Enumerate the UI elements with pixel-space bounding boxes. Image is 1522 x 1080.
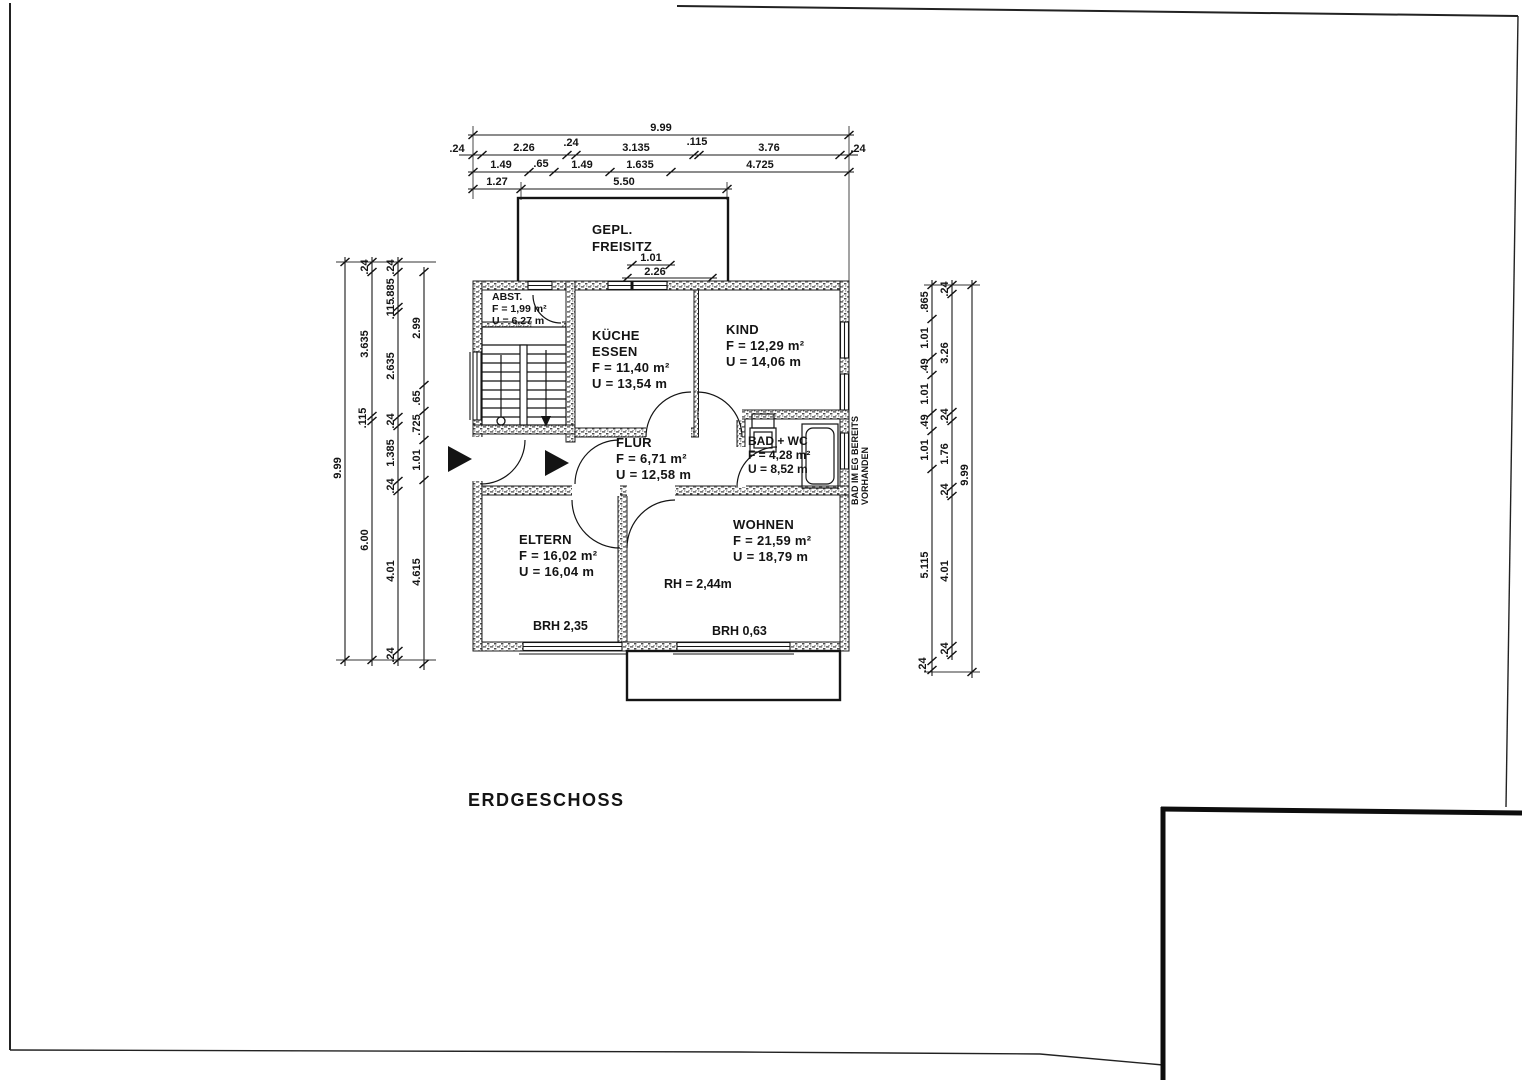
room-perimeter: U = 13,54 m (592, 376, 667, 391)
dim-label: .24 (917, 656, 929, 672)
dim-label: 1.01 (919, 439, 931, 460)
dim-label: 1.01 (411, 449, 423, 470)
dim-label: .24 (359, 258, 371, 274)
dim-label: 9.99 (332, 457, 344, 478)
right-dimension-chain: .865 1.01 .49 1.01 .49 1.01 5.115 .24 .2… (917, 280, 980, 678)
sill-height-wohnen: BRH 0,63 (712, 624, 767, 638)
dim-label: 4.615 (411, 558, 423, 586)
note-line1: BAD IM EG BEREITS (850, 416, 860, 505)
room-perimeter: U = 16,04 m (519, 564, 594, 579)
room-area: F = 6,71 m² (616, 451, 687, 466)
dim-label: .49 (919, 414, 931, 429)
dim-label: 1.01 (919, 383, 931, 404)
room-label-bad: BAD + WC F = 4,28 m² U = 8,52 m (748, 434, 810, 476)
dim-label: .24 (850, 143, 866, 155)
dim-label: 4.725 (746, 159, 774, 171)
dim-label: .24 (449, 143, 465, 155)
dim-label: 3.26 (939, 342, 951, 363)
dim-label: 2.26 (513, 142, 534, 154)
room-name: FLUR (616, 435, 652, 450)
vertical-note: BAD IM EG BEREITS VORHANDEN (850, 416, 870, 505)
dim-label: 1.01 (640, 252, 661, 264)
room-name: ESSEN (592, 344, 638, 359)
room-area: F = 1,99 m² (492, 303, 547, 315)
note-line2: VORHANDEN (860, 447, 870, 505)
dim-label: 5.50 (613, 176, 634, 188)
dim-label: .24 (385, 646, 397, 662)
dim-label: .24 (385, 477, 397, 493)
dim-label: 5.115 (919, 552, 931, 579)
dim-label: .24 (939, 280, 951, 296)
freisitz-label-line1: GEPL. (592, 222, 633, 237)
room-label-kueche: KÜCHE ESSEN F = 11,40 m² U = 13,54 m (592, 328, 670, 391)
entrance-arrow-icon (448, 446, 472, 472)
dim-label: .24 (939, 641, 951, 657)
scanned-floor-plan-page: 9.99 .24 2.26 .24 3.135 .115 3.76 .24 1.… (0, 0, 1522, 1080)
dim-label: .24 (385, 412, 397, 428)
dim-label: .24 (385, 258, 397, 274)
dimension-ticks-top (469, 131, 854, 193)
dim-label: 3.635 (359, 330, 371, 358)
drawing-title: ERDGESCHOSS (468, 790, 625, 810)
room-area: F = 4,28 m² (748, 448, 810, 462)
terrace-outline (627, 651, 840, 700)
room-perimeter: U = 18,79 m (733, 549, 808, 564)
room-label-kind: KIND F = 12,29 m² U = 14,06 m (726, 322, 805, 369)
dim-label: .24 (939, 482, 951, 498)
dim-label: 9.99 (650, 122, 671, 134)
dim-label: .24 (939, 407, 951, 423)
room-height-annotation: RH = 2,44m (664, 577, 732, 591)
dim-label: .115 (687, 136, 708, 148)
room-area: F = 11,40 m² (592, 360, 670, 375)
room-name: WOHNEN (733, 517, 794, 532)
room-perimeter: U = 12,58 m (616, 467, 691, 482)
dim-label: 2.635 (385, 352, 397, 380)
dim-label: .49 (919, 358, 931, 373)
room-name: BAD + WC (748, 434, 808, 448)
title-block (1161, 807, 1522, 1080)
dim-label: .65 (533, 158, 548, 170)
dim-label: .115 (357, 408, 369, 429)
dim-label: 3.76 (758, 142, 779, 154)
dim-label: 4.01 (939, 560, 951, 581)
room-label-flur: FLUR F = 6,71 m² U = 12,58 m (616, 435, 691, 482)
dim-label: .65 (411, 390, 423, 405)
room-name: KÜCHE (592, 328, 640, 343)
sill-height-eltern: BRH 2,35 (533, 619, 588, 633)
dim-label: 1.01 (919, 327, 931, 348)
entrance-arrows (448, 446, 569, 476)
freisitz-terrace: GEPL. FREISITZ 1.01 2.26 (518, 198, 728, 282)
room-name: ELTERN (519, 532, 572, 547)
room-area: F = 16,02 m² (519, 548, 598, 563)
dim-label: .725 (411, 414, 423, 435)
staircase-icon (482, 327, 566, 427)
room-perimeter: U = 8,52 m (748, 462, 808, 476)
dim-label: 2.26 (644, 266, 665, 278)
dim-label: 1.385 (385, 439, 397, 467)
room-label-eltern: ELTERN F = 16,02 m² U = 16,04 m (519, 532, 598, 579)
room-area: F = 21,59 m² (733, 533, 812, 548)
dim-label: .115 (385, 299, 397, 320)
left-dimension-chain: 9.99 .24 3.635 .115 6.00 .24 .885 .115 2… (332, 257, 436, 670)
room-label-abst: ABST. F = 1,99 m² U = 6,27 m (492, 291, 547, 327)
dim-label: 1.49 (571, 159, 592, 171)
room-label-wohnen: WOHNEN F = 21,59 m² U = 18,79 m (733, 517, 812, 564)
dim-label: 3.135 (622, 142, 650, 154)
dim-label: .865 (919, 291, 931, 312)
room-area: F = 12,29 m² (726, 338, 805, 353)
room-name: ABST. (492, 291, 522, 303)
entrance-arrow-icon (545, 450, 569, 476)
room-perimeter: U = 14,06 m (726, 354, 801, 369)
dim-label: 1.635 (626, 159, 654, 171)
dim-label: .885 (385, 278, 397, 299)
room-name: KIND (726, 322, 759, 337)
dim-label: 4.01 (385, 560, 397, 581)
dim-label: 1.27 (486, 176, 507, 188)
dim-label: 1.76 (939, 443, 951, 464)
dim-label: 1.49 (490, 159, 511, 171)
room-perimeter: U = 6,27 m (492, 315, 544, 327)
dim-label: .24 (563, 137, 579, 149)
dim-label: 2.99 (411, 317, 423, 338)
dim-label: 6.00 (359, 529, 371, 550)
dim-label: 9.99 (959, 464, 971, 485)
